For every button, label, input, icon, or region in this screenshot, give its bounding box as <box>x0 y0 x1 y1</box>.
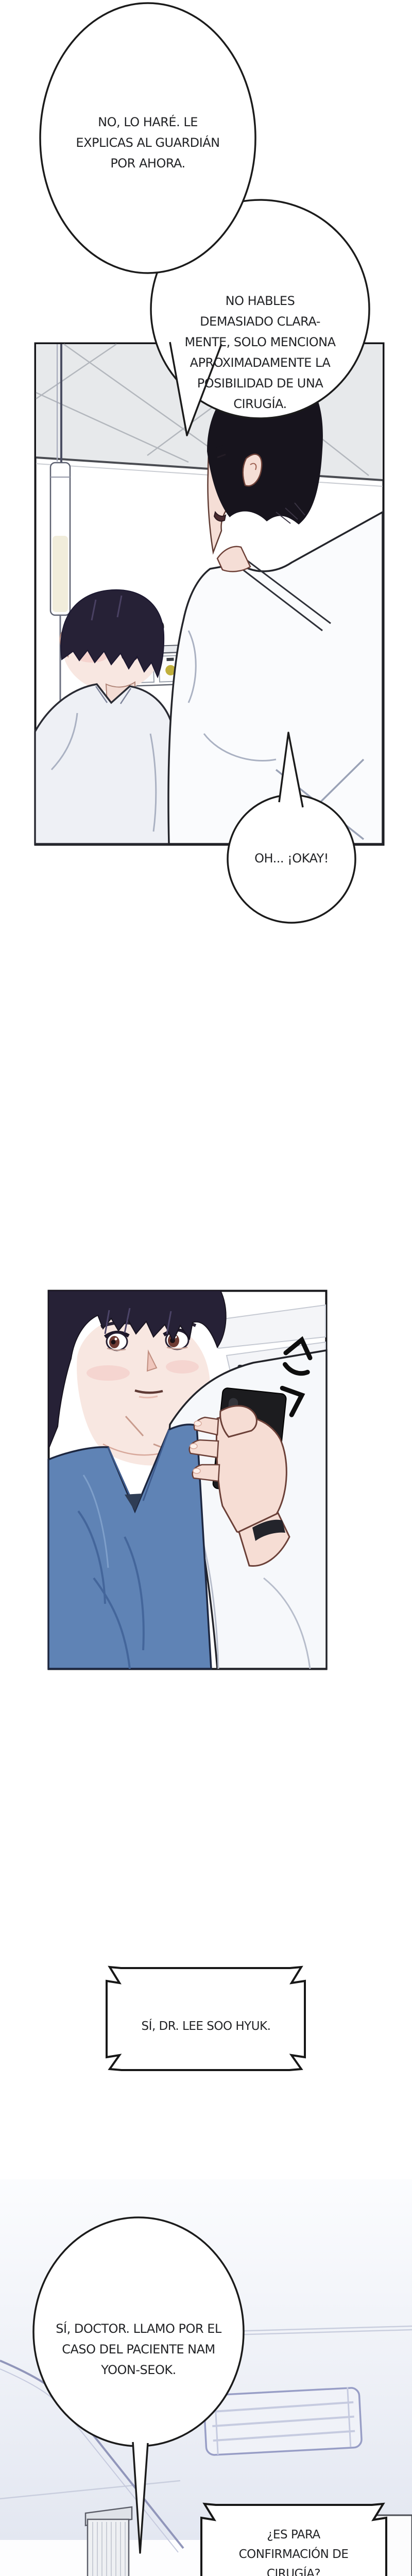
speech-text-2: NO HABLES DEMASIADO CLARA- MENTE, SOLO M… <box>185 291 336 414</box>
speech-text-1: NO, LO HARÉ. LE EXPLICAS AL GUARDIÁN POR… <box>76 112 219 174</box>
webtoon-page: NO, LO HARÉ. LE EXPLICAS AL GUARDIÁN POR… <box>0 0 412 2576</box>
bubble-tail <box>133 2442 148 2553</box>
bubble-tail <box>279 733 303 807</box>
speech-bubble-3 <box>216 719 371 935</box>
phone-voice-text-2: ¿ES PARA CONFIRMACIÓN DE CIRUGÍA? <box>239 2525 349 2576</box>
phone-voice-text-1: SÍ, DR. LEE SOO HYUK. <box>142 2016 271 2036</box>
panel-2 <box>47 1290 328 1670</box>
speech-text-4: SÍ, DOCTOR. LLAMO POR EL CASO DEL PACIEN… <box>56 2318 221 2380</box>
speech-text-3: OH... ¡OKAY! <box>254 848 329 869</box>
